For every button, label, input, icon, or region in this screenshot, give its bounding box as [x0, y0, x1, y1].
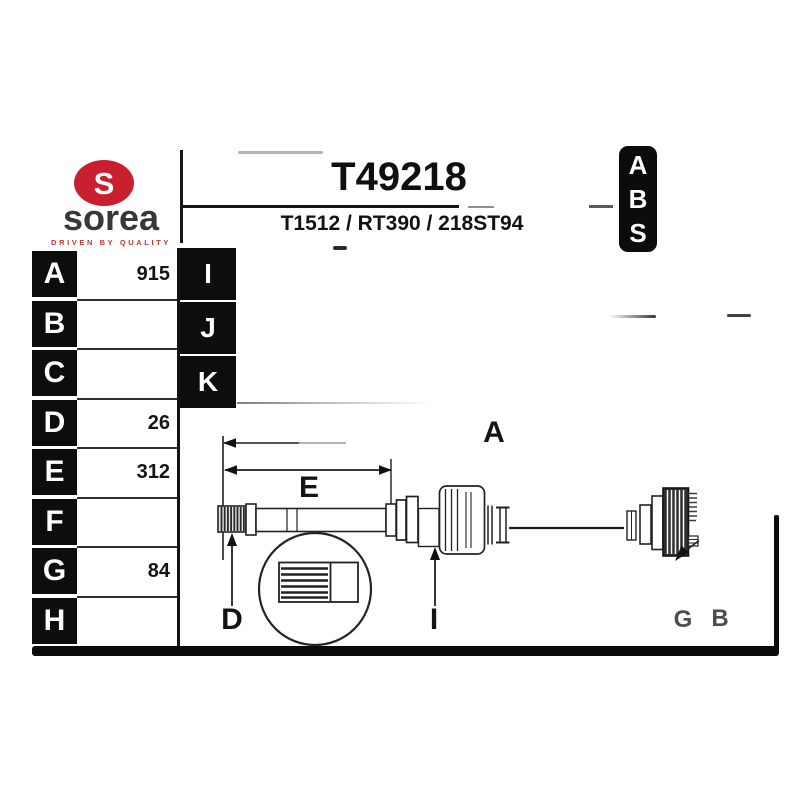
brand-logo: S sorea DRIVEN BY QUALITY: [32, 150, 178, 250]
abs-badge: A B S: [619, 146, 657, 252]
header-divider-faded-1: [468, 206, 494, 208]
header-divider-vertical: [180, 150, 183, 243]
abs-letter-b: B: [619, 186, 657, 212]
label-b: B: [711, 605, 728, 632]
side-tab-i: I: [180, 248, 236, 300]
row-letter-tile: F: [32, 499, 77, 545]
scan-smudge: [608, 315, 656, 318]
label-i: I: [430, 603, 438, 636]
scan-smudge: [333, 246, 347, 250]
arrowhead: [223, 438, 236, 448]
abs-letter-a: A: [619, 152, 657, 178]
table-row: B: [32, 301, 178, 351]
inner-cv-joint: [397, 486, 510, 554]
row-letter-tile: H: [32, 598, 77, 644]
part-number: T49218: [185, 155, 613, 200]
row-value: [77, 598, 178, 648]
scan-smudge: [727, 314, 751, 317]
table-row: C: [32, 350, 178, 400]
axle-diagram: A E D I G B: [185, 398, 785, 648]
arrowhead: [379, 465, 392, 475]
table-row: G 84: [32, 548, 178, 598]
label-d: D: [221, 603, 243, 636]
row-value: 84: [77, 548, 178, 598]
spline-detail-magnifier: [259, 533, 371, 645]
header-divider-horizontal: [183, 205, 459, 208]
oe-reference: T1512 / RT390 / 218ST94: [185, 212, 619, 236]
drive-shaft: [218, 504, 396, 536]
side-tab-band: I J K: [180, 248, 236, 408]
row-value: [77, 301, 178, 351]
row-letter-tile: D: [32, 400, 77, 446]
row-value: [77, 350, 178, 400]
logo-glyph: S: [94, 166, 115, 201]
label-e: E: [299, 471, 319, 504]
row-letter-tile: E: [32, 449, 77, 495]
callout-d: [227, 533, 237, 606]
arrowhead: [224, 465, 237, 475]
side-tab-j: J: [180, 300, 236, 354]
spec-table: A 915 B C D 26 E 312 F G 84 H: [32, 251, 178, 647]
header-divider-faded-2: [589, 205, 613, 208]
brand-name: sorea: [45, 200, 177, 236]
table-row: H: [32, 598, 178, 648]
row-value: 26: [77, 400, 178, 450]
row-letter-tile: G: [32, 548, 77, 594]
label-g: G: [674, 606, 693, 633]
row-letter-tile: B: [32, 301, 77, 347]
abs-letter-s: S: [619, 220, 657, 246]
callout-i: [430, 547, 440, 606]
row-value: 312: [77, 449, 178, 499]
scan-smudge: [238, 151, 323, 154]
outer-cv-joint: [627, 488, 699, 556]
table-row: F: [32, 499, 178, 549]
table-row: D 26: [32, 400, 178, 450]
row-value: [77, 499, 178, 549]
brand-tagline: DRIVEN BY QUALITY: [48, 238, 174, 247]
row-letter-tile: A: [32, 251, 77, 297]
table-row: E 312: [32, 449, 178, 499]
row-value: 915: [77, 251, 178, 301]
table-row: A 915: [32, 251, 178, 301]
row-letter-tile: C: [32, 350, 77, 396]
label-a: A: [483, 416, 505, 449]
catalog-page: S sorea DRIVEN BY QUALITY T49218 T1512 /…: [0, 0, 800, 800]
